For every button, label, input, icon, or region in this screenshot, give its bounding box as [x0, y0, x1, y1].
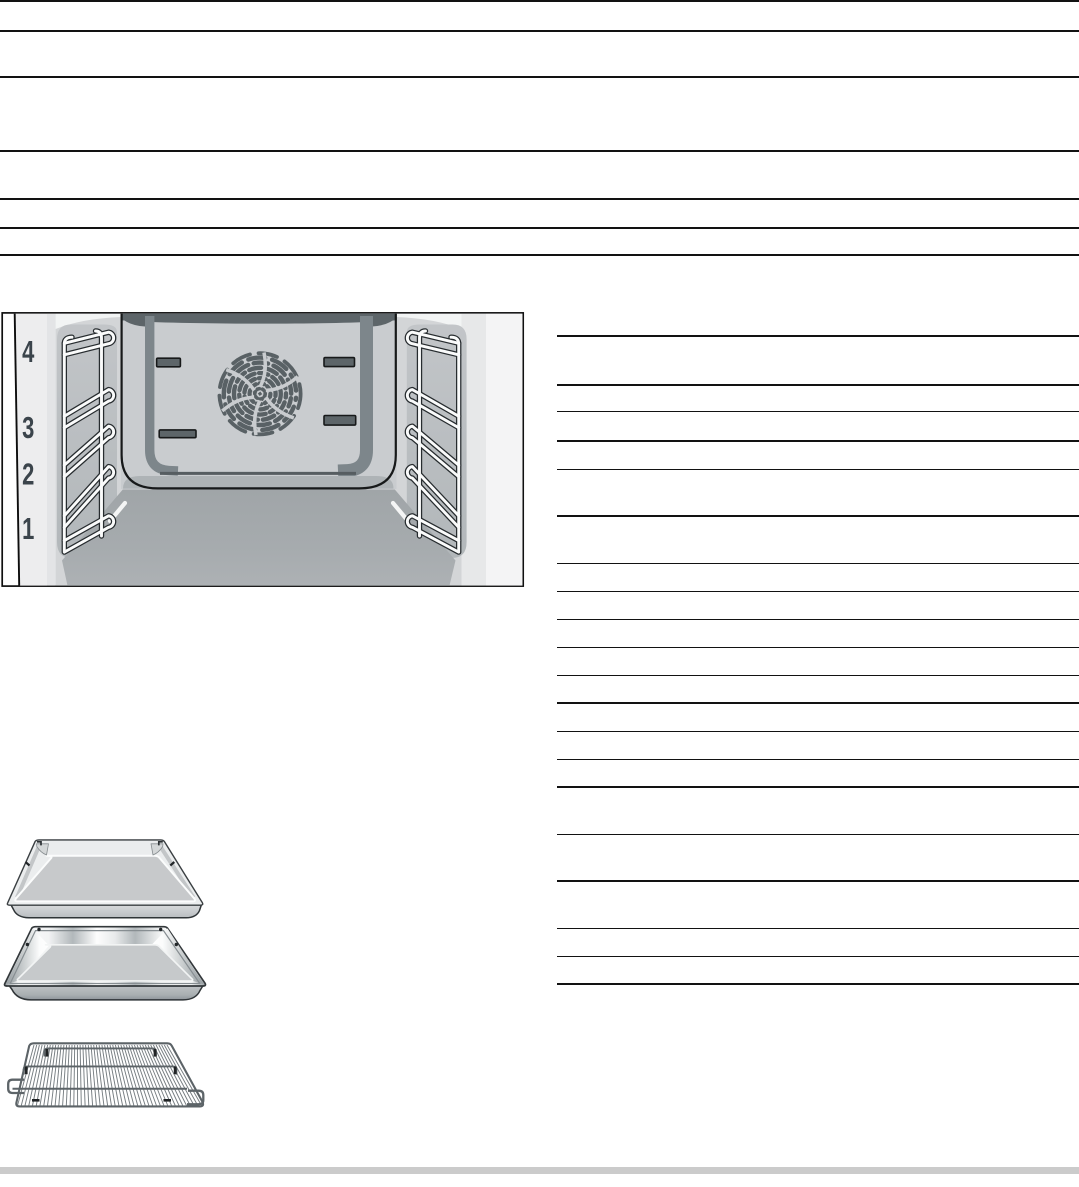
svg-text:4: 4: [22, 335, 34, 369]
svg-text:1: 1: [22, 512, 34, 546]
svg-text:2: 2: [22, 458, 34, 492]
svg-text:3: 3: [22, 411, 34, 445]
